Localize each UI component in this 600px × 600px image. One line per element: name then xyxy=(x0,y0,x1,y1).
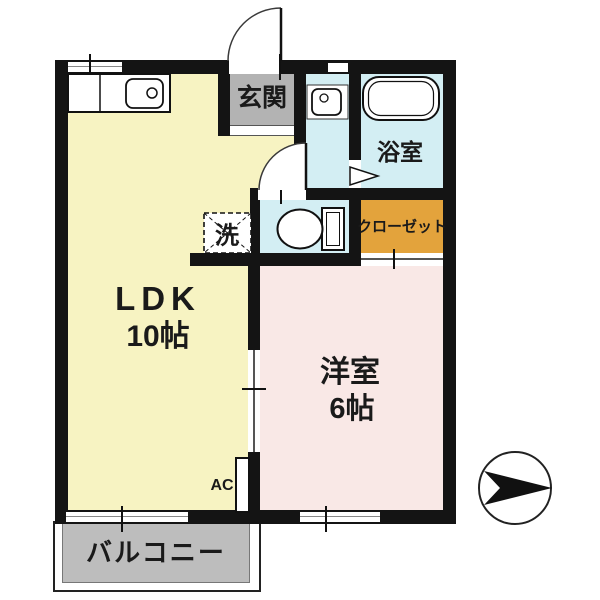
wall-room-divider-upper xyxy=(248,266,260,350)
ldk-size-label: 10帖 xyxy=(126,311,189,355)
washroom xyxy=(306,66,349,188)
bathroom xyxy=(361,66,443,188)
toilet-doorway-tick xyxy=(280,184,282,204)
entrance-door-arc xyxy=(228,8,281,61)
closet-door-tick xyxy=(393,249,395,269)
divider-door-tick xyxy=(242,388,266,390)
entrance-doorway xyxy=(229,60,280,74)
kitchen-window-tick xyxy=(89,54,91,80)
wall-room-divider-lower xyxy=(248,452,260,524)
western-room-size-label: 6帖 xyxy=(329,385,374,427)
entrance-step xyxy=(230,125,294,136)
western-window-tick xyxy=(325,506,327,532)
balcony-window xyxy=(66,512,188,522)
room-divider-sliding-door xyxy=(248,350,260,452)
wall-under-toilet xyxy=(190,253,350,266)
closet-sliding-door xyxy=(361,253,443,265)
bathroom-doorway xyxy=(349,160,361,188)
compass-circle xyxy=(479,452,551,524)
bathroom-label: 浴室 xyxy=(377,133,423,167)
entrance-label: 玄関 xyxy=(237,78,287,114)
wall-left xyxy=(55,60,68,524)
entrance-hinge-tick xyxy=(279,54,281,80)
north-arrow-icon xyxy=(484,471,552,505)
toilet-doorway xyxy=(258,188,306,200)
closet-label: クローゼット xyxy=(357,216,447,237)
kitchen-window xyxy=(68,62,122,72)
laundry-label: 洗 xyxy=(215,216,239,251)
toilet-room xyxy=(260,200,349,253)
balcony-label: バルコニー xyxy=(86,533,226,570)
wall-vent xyxy=(328,63,348,72)
floor-plan: 玄関 浴室 洗 クローゼット LDK 10帖 洋室 6帖 バルコニー AC xyxy=(0,0,600,600)
wall-right xyxy=(443,60,456,524)
western-room-window xyxy=(300,512,380,522)
wall-entrance-right xyxy=(294,60,306,190)
balcony-window-tick xyxy=(121,506,123,532)
ac-label: AC xyxy=(210,477,233,495)
